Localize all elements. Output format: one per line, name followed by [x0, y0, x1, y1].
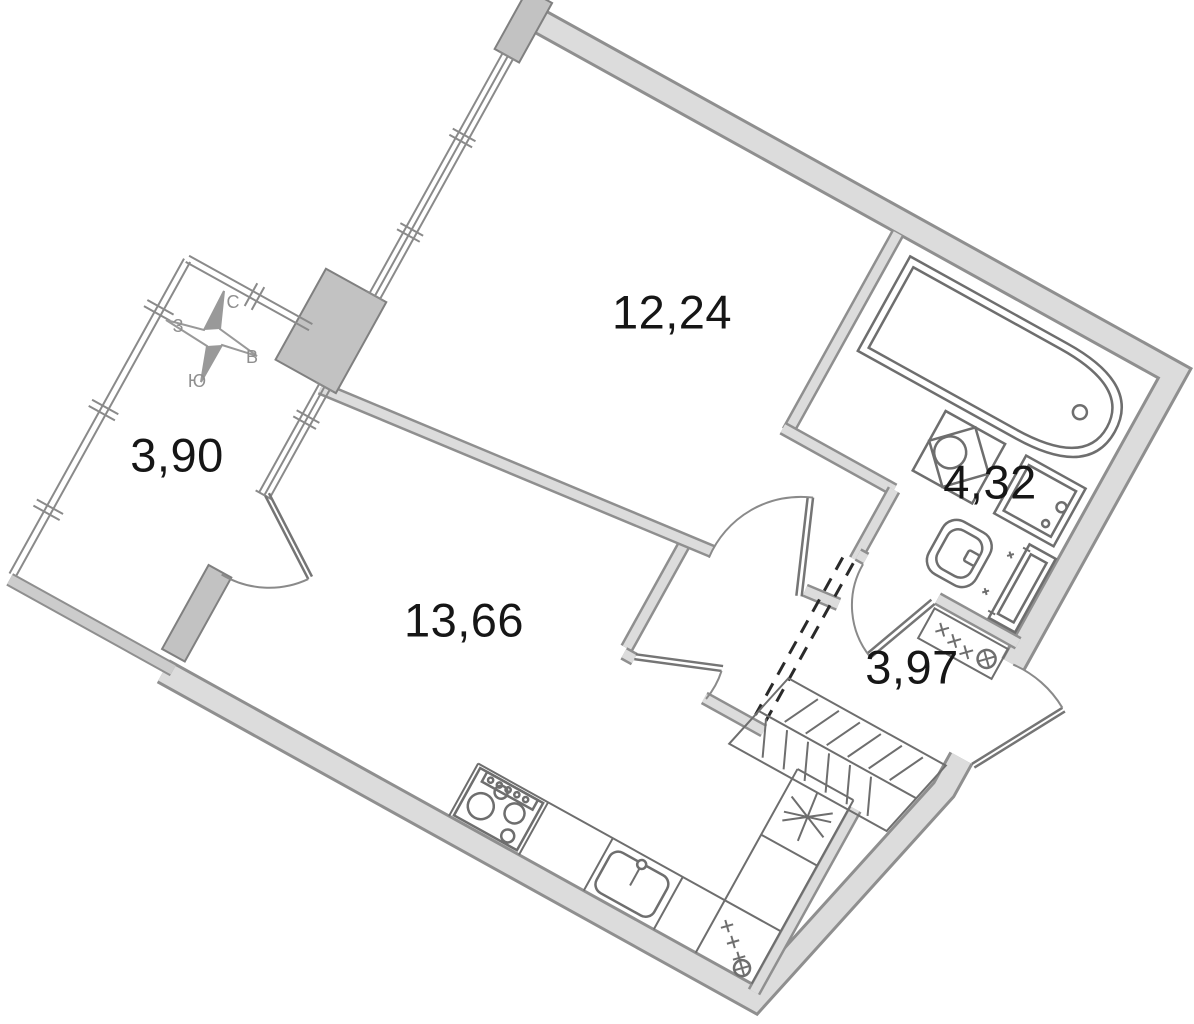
bedroom-door	[708, 467, 846, 606]
compass-north-label: С	[227, 292, 240, 312]
living-window	[253, 381, 336, 502]
entry-door	[960, 664, 1073, 793]
compass-east-label: В	[246, 347, 258, 367]
room-label-balcony: 3,90	[130, 428, 223, 483]
pillar-bottom	[162, 565, 231, 662]
room-label-hallway: 3,97	[865, 640, 958, 695]
balcony-mullion-ticks	[33, 300, 173, 520]
room-label-bedroom: 12,24	[612, 285, 732, 340]
balcony-floor-band	[10, 579, 174, 670]
balcony-door	[222, 492, 338, 613]
compass-south-label: Ю	[188, 371, 206, 391]
toilet-icon	[921, 514, 1016, 603]
compass-west-label: З	[173, 316, 184, 336]
compass-rose-icon: С З В Ю	[166, 291, 258, 391]
floor-plan-svg: С З В Ю	[0, 0, 1194, 1024]
room-label-bathroom: 4,32	[943, 455, 1036, 510]
bedroom-window	[364, 50, 520, 302]
plan-rotated-group	[0, 0, 1194, 1024]
floor-plan-page: С З В Ю 12,24 3,90 13,66 4,32 3,97	[0, 0, 1194, 1024]
room-label-living-kitchen: 13,66	[404, 593, 524, 648]
outer-walls	[163, 15, 1174, 1024]
hall-door	[633, 626, 725, 699]
balcony-glazing-west	[9, 259, 190, 577]
balcony-glazing-north	[186, 256, 313, 330]
pillar-middle	[276, 269, 387, 393]
